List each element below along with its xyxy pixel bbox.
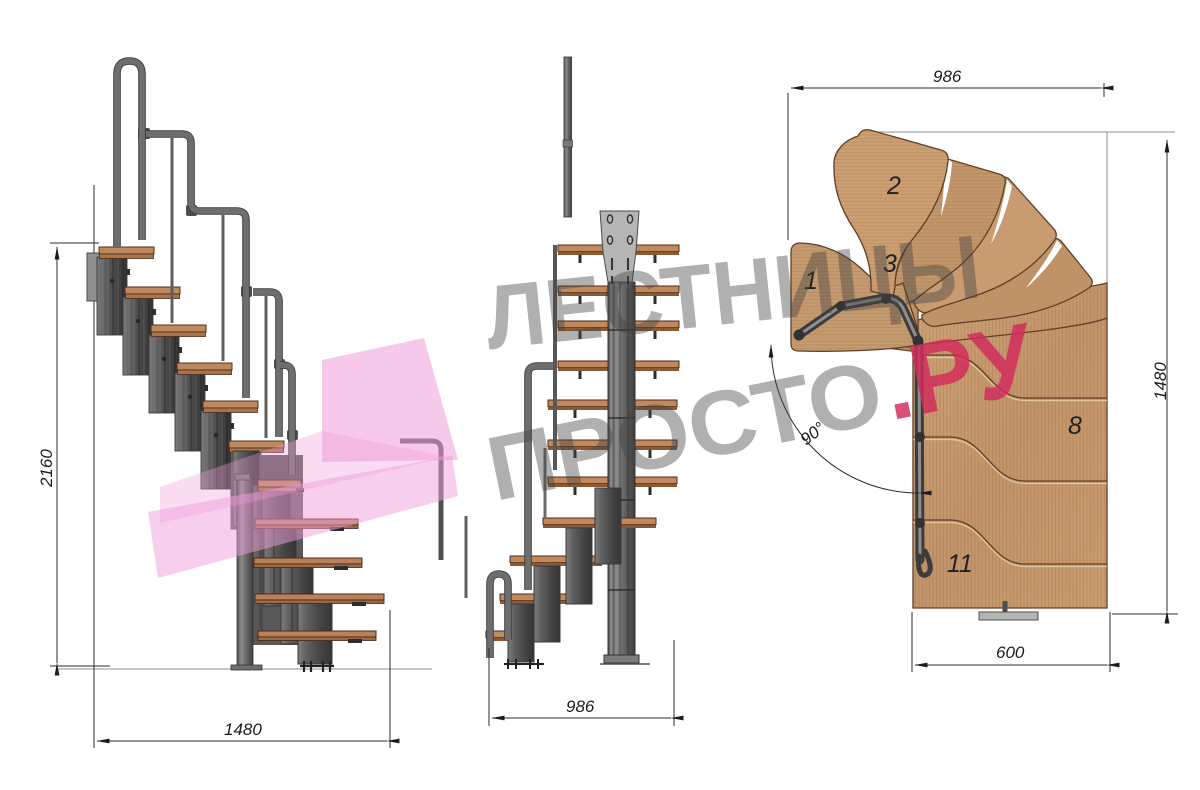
svg-text:986: 986 (933, 67, 962, 86)
svg-text:11: 11 (947, 550, 973, 578)
svg-text:986: 986 (566, 697, 595, 716)
svg-text:8: 8 (1068, 412, 1082, 440)
svg-text:2: 2 (886, 172, 901, 200)
svg-text:1480: 1480 (1151, 362, 1170, 400)
svg-text:600: 600 (996, 643, 1025, 662)
svg-text:2160: 2160 (37, 449, 56, 488)
svg-text:1480: 1480 (224, 720, 262, 739)
